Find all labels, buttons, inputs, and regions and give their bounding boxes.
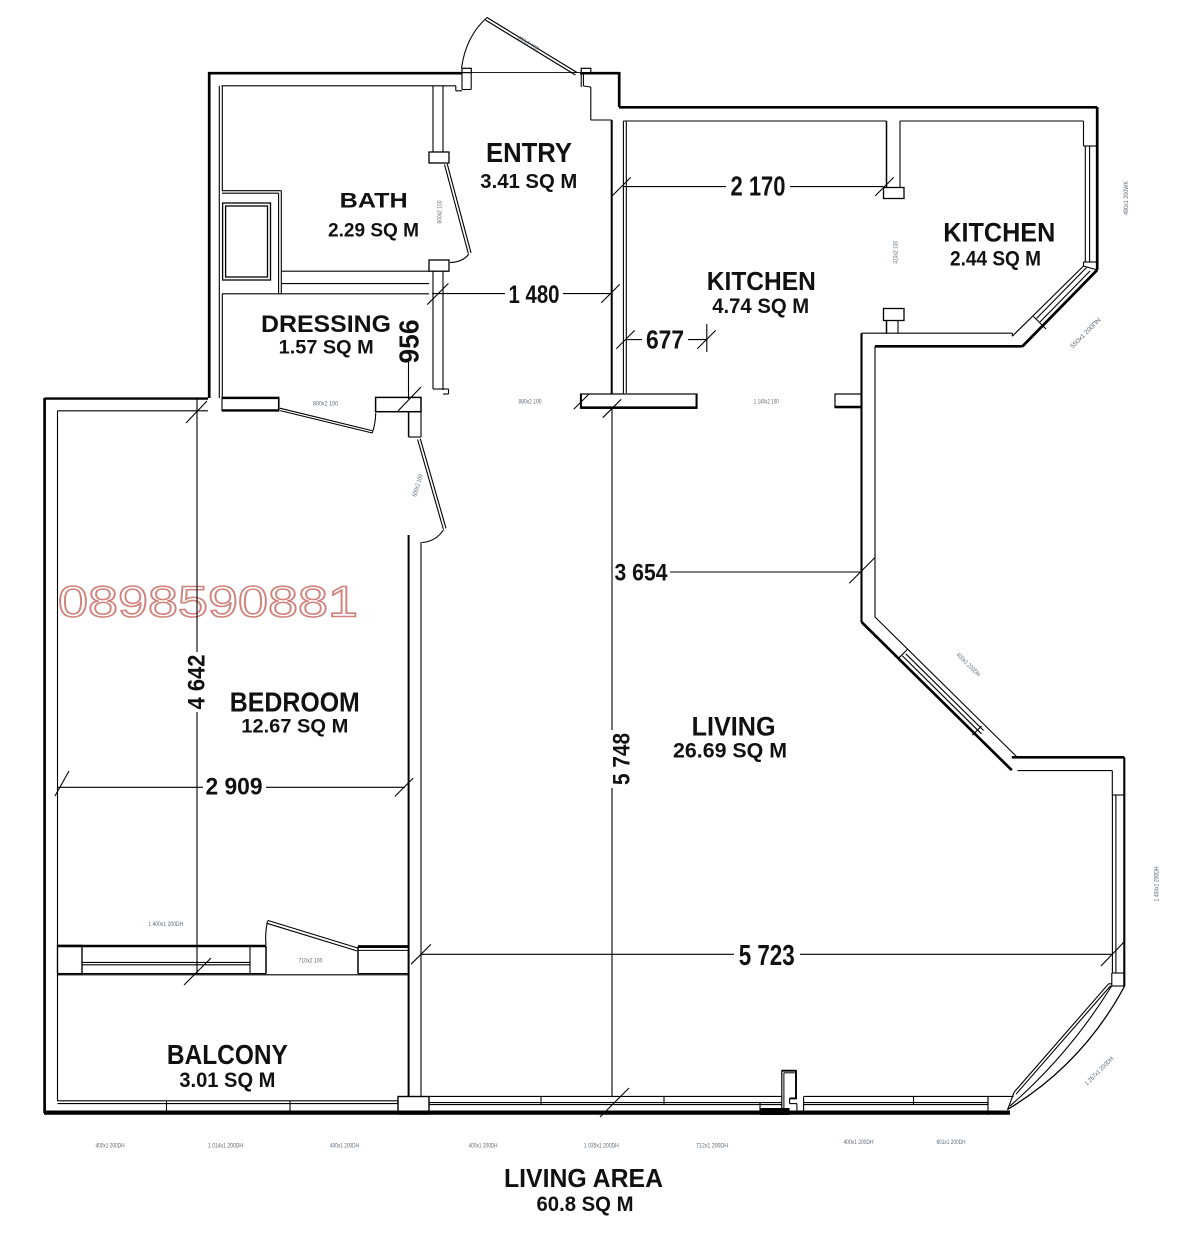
svg-text:800x2 100: 800x2 100 [313,401,338,408]
svg-text:400x1 200DH: 400x1 200DH [96,1142,125,1149]
svg-text:2 909: 2 909 [206,774,263,801]
svg-text:2.44 SQ M: 2.44 SQ M [950,248,1041,271]
svg-text:3.41 SQ M: 3.41 SQ M [480,171,577,193]
svg-text:BALCONY: BALCONY [167,1039,288,1070]
svg-text:3 654: 3 654 [615,560,669,587]
svg-text:1 035x1 200DH: 1 035x1 200DH [584,1142,619,1149]
svg-text:0898590881: 0898590881 [58,578,358,627]
svg-text:60.8 SQ M: 60.8 SQ M [537,1193,634,1216]
svg-text:4.74 SQ M: 4.74 SQ M [712,295,809,318]
svg-text:2 170: 2 170 [731,171,786,202]
svg-text:1 400x1 200DH: 1 400x1 200DH [148,921,183,928]
svg-text:956: 956 [394,320,425,364]
svg-text:12.67 SQ M: 12.67 SQ M [241,716,348,738]
svg-text:3.01 SQ M: 3.01 SQ M [179,1069,275,1092]
svg-text:1 140x2 100: 1 140x2 100 [754,398,779,405]
svg-text:410x2 100: 410x2 100 [893,240,900,263]
svg-text:400x1 200DH: 400x1 200DH [330,1142,359,1149]
svg-text:BEDROOM: BEDROOM [230,687,360,718]
svg-text:KITCHEN: KITCHEN [943,218,1055,248]
svg-text:710x2 100: 710x2 100 [299,957,323,964]
svg-text:601x1 200DH: 601x1 200DH [937,1139,966,1146]
svg-text:LIVING: LIVING [692,712,776,742]
svg-text:26.69 SQ M: 26.69 SQ M [673,740,787,763]
svg-text:1 014x1 200DH: 1 014x1 200DH [208,1142,243,1149]
svg-text:400x1 200DH: 400x1 200DH [469,1142,498,1149]
svg-text:5 748: 5 748 [609,733,636,785]
svg-text:1.57 SQ M: 1.57 SQ M [279,338,374,359]
svg-text:880x2 100: 880x2 100 [519,398,542,405]
svg-text:712x1 200DH: 712x1 200DH [696,1142,728,1149]
svg-text:5 723: 5 723 [739,940,795,972]
svg-text:ENTRY: ENTRY [486,137,572,168]
svg-text:677: 677 [646,325,684,355]
svg-text:490x1 200WK: 490x1 200WK [1123,180,1130,215]
svg-text:1 404x1 200DH: 1 404x1 200DH [1154,866,1161,901]
svg-text:1 480: 1 480 [509,281,560,309]
svg-text:DRESSING: DRESSING [261,311,391,338]
svg-text:400x1 200DH: 400x1 200DH [844,1139,874,1146]
svg-text:2.29 SQ M: 2.29 SQ M [328,220,419,242]
svg-text:4 642: 4 642 [184,655,211,710]
svg-text:BATH: BATH [340,190,408,213]
svg-text:KITCHEN: KITCHEN [707,266,816,296]
svg-text:LIVING AREA: LIVING AREA [504,1163,663,1193]
svg-text:600x2 100: 600x2 100 [437,200,444,223]
